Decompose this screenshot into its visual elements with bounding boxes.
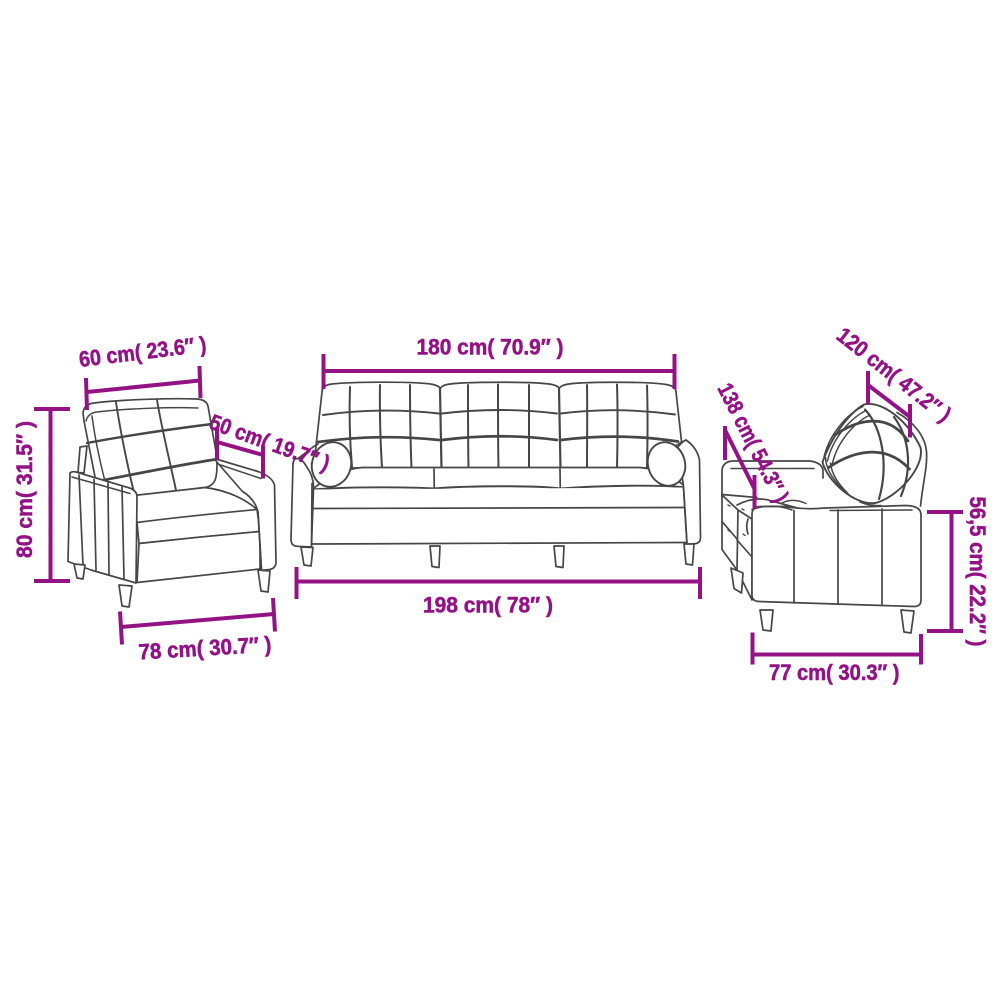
svg-text:56,5 cm( 22.2″ ): 56,5 cm( 22.2″ ): [965, 497, 990, 647]
svg-text:80 cm( 31.5″ ): 80 cm( 31.5″ ): [12, 421, 37, 558]
svg-text:180 cm( 70.9″ ): 180 cm( 70.9″ ): [417, 335, 564, 360]
svg-text:78 cm( 30.7″ ): 78 cm( 30.7″ ): [138, 632, 272, 665]
svg-text:120 cm( 47.2″ ): 120 cm( 47.2″ ): [832, 322, 956, 427]
svg-text:77 cm( 30.3″ ): 77 cm( 30.3″ ): [769, 660, 900, 685]
svg-text:60 cm( 23.6″ ): 60 cm( 23.6″ ): [78, 332, 208, 372]
svg-text:198 cm( 78″ ): 198 cm( 78″ ): [423, 593, 553, 618]
